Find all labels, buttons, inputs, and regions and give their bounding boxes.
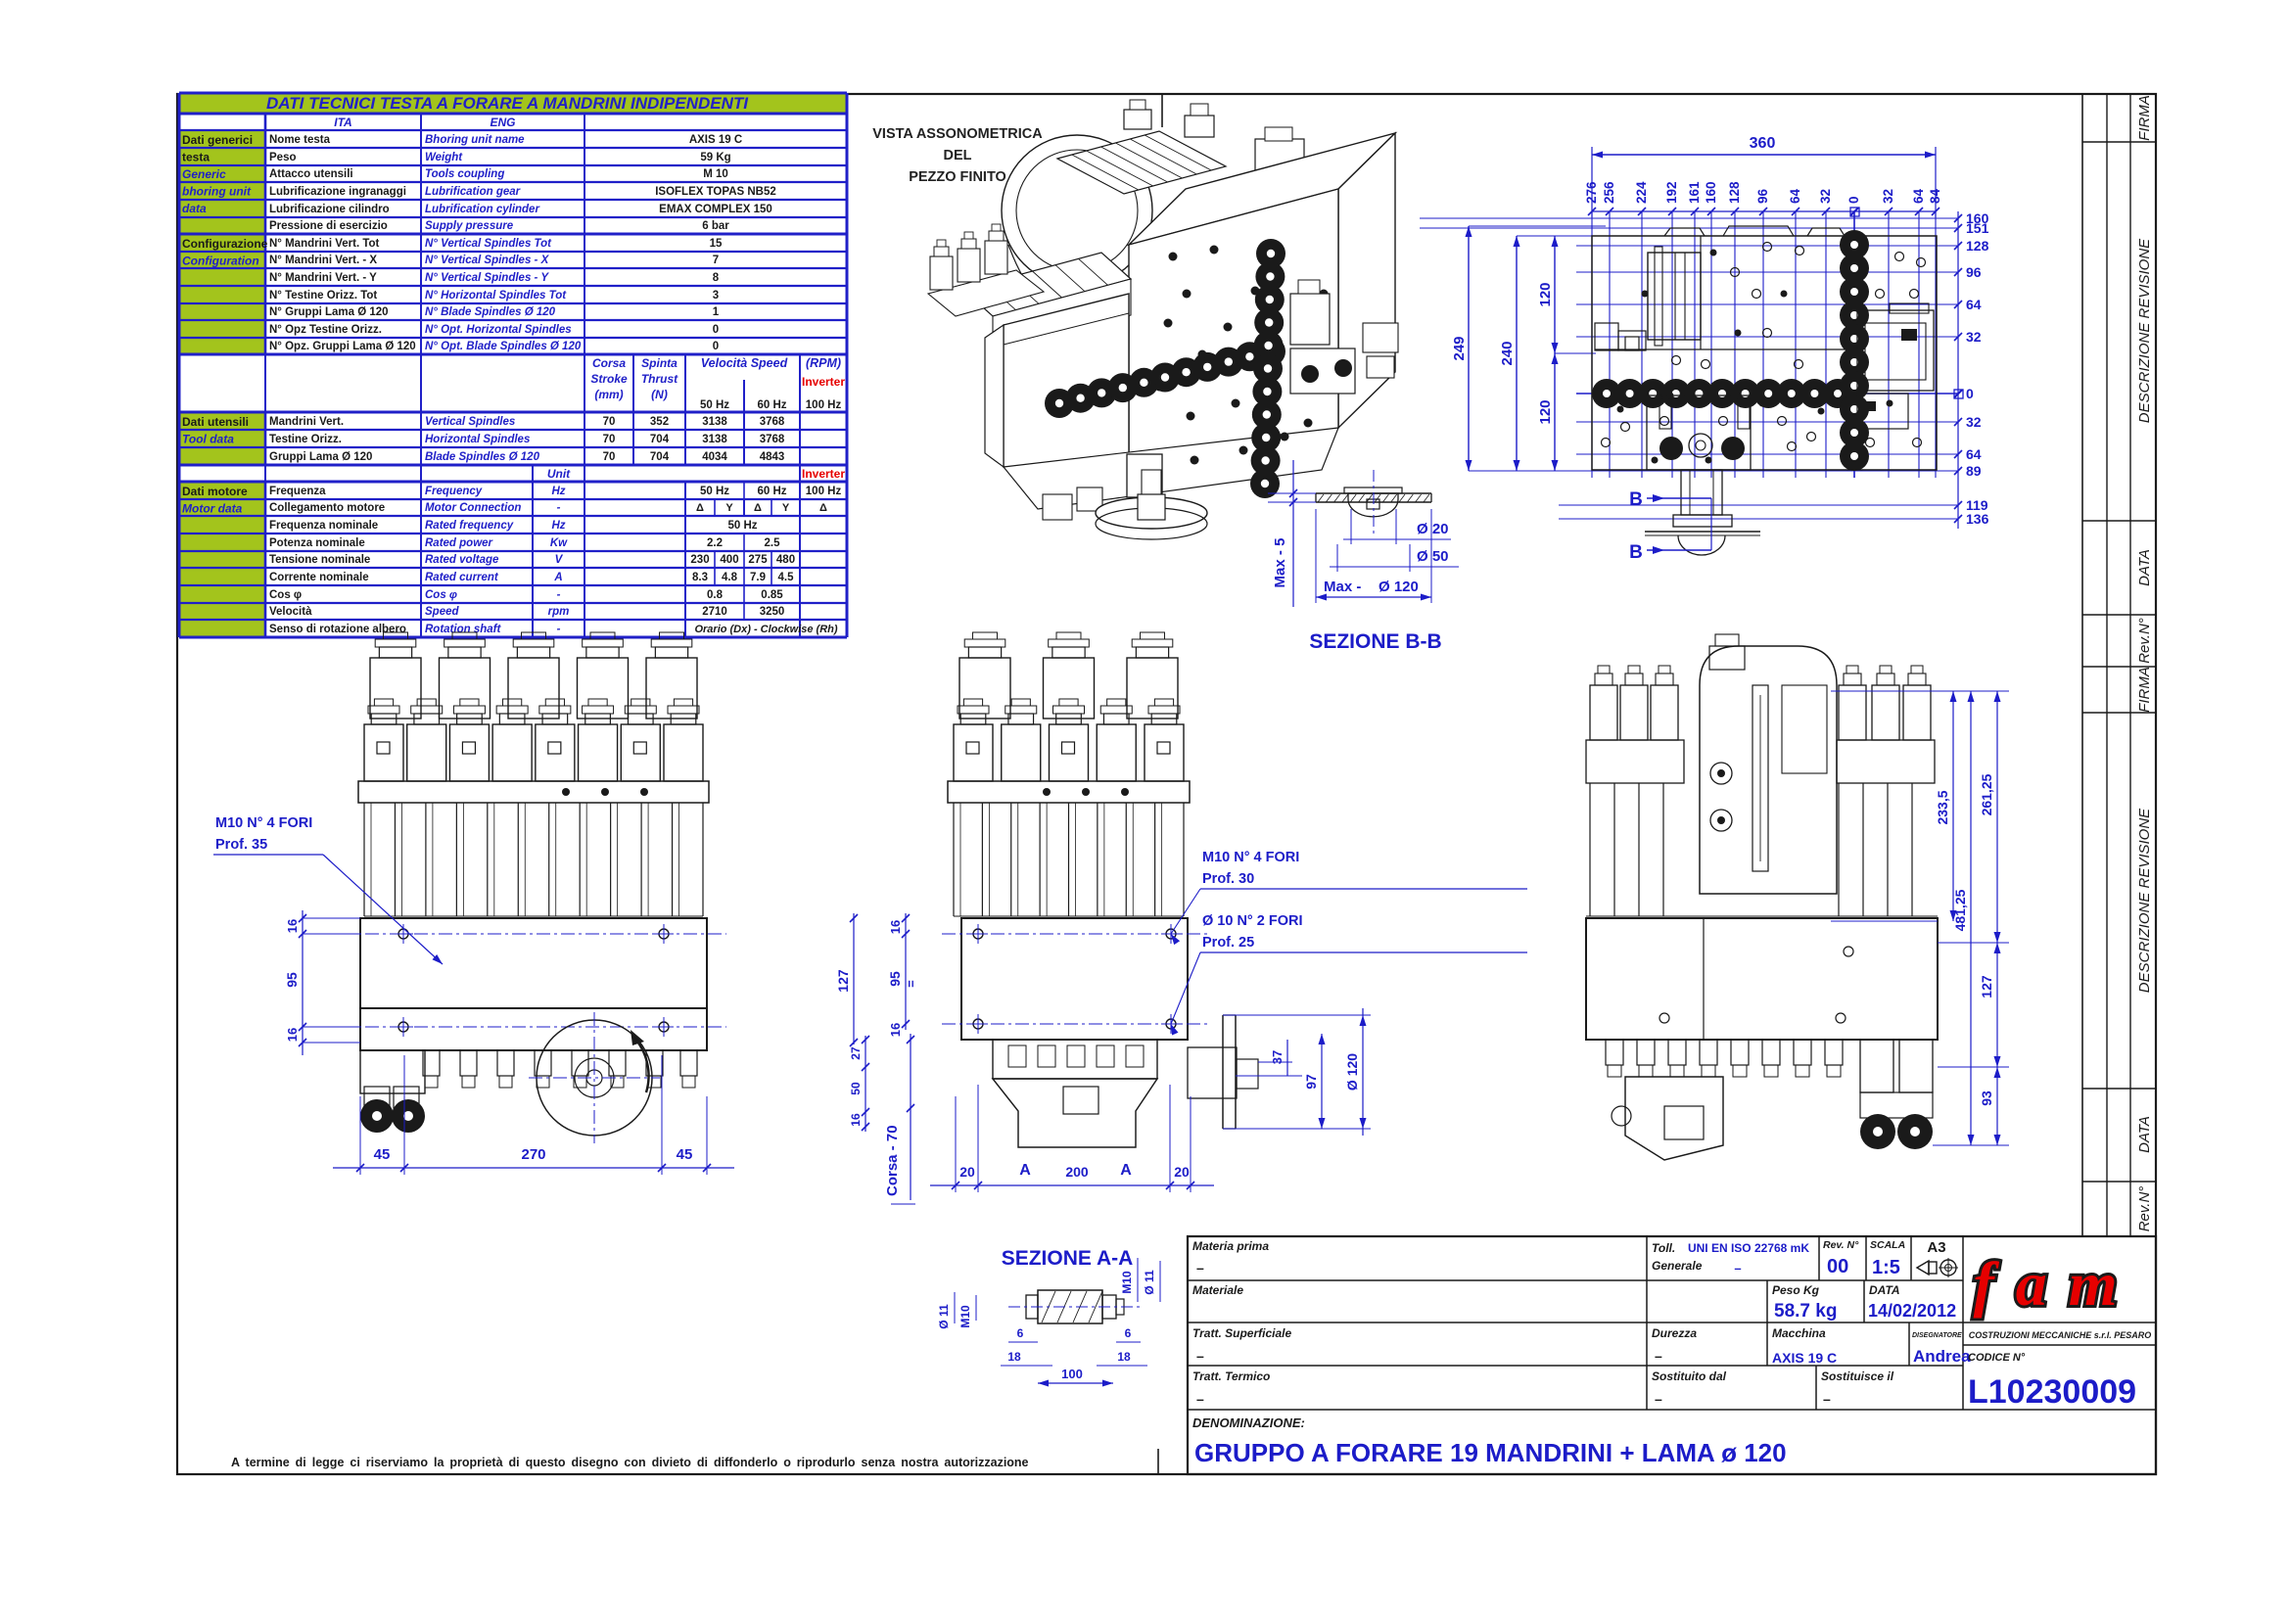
svg-text:Corsa - 70: Corsa - 70	[884, 1125, 901, 1196]
svg-text:Stroke: Stroke	[590, 372, 628, 386]
svg-text:Cos φ: Cos φ	[425, 589, 457, 601]
svg-text:7: 7	[713, 255, 719, 266]
svg-text:Max - 5: Max - 5	[1272, 538, 1288, 588]
svg-text:Velocità Speed: Velocità Speed	[701, 356, 788, 370]
svg-text:18: 18	[1007, 1350, 1021, 1364]
svg-text:Frequency: Frequency	[425, 486, 483, 497]
svg-text:COSTRUZIONI MECCANICHE s.r.l.: COSTRUZIONI MECCANICHE s.r.l. PESARO	[1969, 1330, 2152, 1340]
svg-text:N° Opt. Horizontal Spindles: N° Opt. Horizontal Spindles	[425, 324, 572, 336]
svg-text:Generic: Generic	[182, 167, 226, 181]
svg-text:ITA: ITA	[334, 116, 351, 129]
svg-text:0: 0	[713, 324, 719, 336]
svg-text:50: 50	[849, 1082, 863, 1095]
svg-text:151: 151	[1966, 220, 1989, 236]
svg-text:256: 256	[1602, 181, 1616, 204]
svg-text:261,25: 261,25	[1979, 773, 1994, 815]
svg-text:97: 97	[1303, 1074, 1319, 1090]
svg-text:Toll.: Toll.	[1652, 1241, 1675, 1255]
svg-text:4034: 4034	[702, 451, 727, 463]
svg-text:Lubrification gear: Lubrification gear	[425, 186, 521, 198]
svg-text:Pressione di esercizio: Pressione di esercizio	[269, 220, 388, 232]
svg-text:-: -	[557, 502, 561, 514]
svg-text:EMAX COMPLEX 150: EMAX COMPLEX 150	[659, 204, 772, 215]
svg-text:B: B	[1629, 542, 1643, 563]
svg-text:Rotation shaft: Rotation shaft	[425, 624, 501, 635]
svg-text:Dati utensili: Dati utensili	[182, 415, 249, 429]
svg-text:Configurazione: Configurazione	[182, 237, 268, 251]
svg-text:2.2: 2.2	[707, 537, 723, 549]
svg-text:Rev.N°: Rev.N°	[2136, 618, 2153, 664]
svg-text:Macchina: Macchina	[1772, 1326, 1826, 1340]
svg-text:–: –	[1196, 1260, 1204, 1276]
svg-text:120: 120	[1537, 282, 1554, 306]
svg-text:89: 89	[1966, 463, 1982, 479]
svg-text:128: 128	[1966, 238, 1989, 254]
svg-text:N° Vertical Spindles Tot: N° Vertical Spindles Tot	[425, 238, 552, 250]
svg-text:96: 96	[1966, 264, 1982, 280]
svg-text:N° Mandrini Vert. - Y: N° Mandrini Vert. - Y	[269, 272, 377, 284]
svg-text:N° Opt. Blade Spindles Ø 120: N° Opt. Blade Spindles Ø 120	[425, 341, 582, 352]
svg-text:–: –	[1196, 1391, 1204, 1407]
svg-text:70: 70	[603, 434, 616, 445]
svg-text:4.8: 4.8	[722, 572, 738, 583]
svg-text:UNI EN ISO 22768 mK: UNI EN ISO 22768 mK	[1688, 1241, 1809, 1255]
svg-text:192: 192	[1664, 181, 1679, 204]
svg-text:M10: M10	[958, 1305, 972, 1328]
svg-text:N° Opz. Gruppi Lama Ø 120: N° Opz. Gruppi Lama Ø 120	[269, 341, 416, 352]
svg-text:DESCRIZIONE REVISIONE: DESCRIZIONE REVISIONE	[2136, 238, 2153, 423]
svg-text:233,5: 233,5	[1935, 790, 1950, 824]
svg-text:Supply pressure: Supply pressure	[425, 220, 514, 232]
svg-text:3768: 3768	[760, 416, 785, 428]
svg-text:Tools coupling: Tools coupling	[425, 168, 504, 180]
svg-text:100: 100	[1061, 1367, 1083, 1381]
svg-text:60 Hz: 60 Hz	[757, 399, 786, 411]
svg-text:M10: M10	[1120, 1271, 1134, 1294]
svg-text:3138: 3138	[702, 416, 727, 428]
svg-text:Frequenza: Frequenza	[269, 486, 326, 497]
svg-text:Configuration: Configuration	[182, 255, 259, 268]
svg-text:DEL: DEL	[944, 148, 972, 163]
svg-text:Thrust: Thrust	[641, 372, 678, 386]
svg-text:Cos φ: Cos φ	[269, 589, 302, 601]
svg-text:V: V	[555, 554, 564, 566]
svg-text:Peso: Peso	[269, 152, 297, 163]
svg-text:Rated current: Rated current	[425, 572, 499, 583]
svg-text:(N): (N)	[651, 388, 668, 401]
svg-text:Motor Connection: Motor Connection	[425, 502, 521, 514]
svg-text:-: -	[557, 589, 561, 601]
svg-text:50 Hz: 50 Hz	[700, 399, 729, 411]
svg-text:50 Hz: 50 Hz	[700, 486, 729, 497]
svg-text:Generale: Generale	[1652, 1259, 1703, 1273]
svg-text:Weight: Weight	[425, 152, 463, 163]
svg-text:DATA: DATA	[2136, 1116, 2153, 1153]
svg-text:32: 32	[1881, 189, 1895, 204]
svg-text:DISEGNATORE: DISEGNATORE	[1912, 1332, 1962, 1339]
svg-text:4.5: 4.5	[778, 572, 795, 583]
svg-text:Materia prima: Materia prima	[1192, 1239, 1269, 1253]
svg-text:93: 93	[1979, 1090, 1994, 1106]
svg-text:FIRMA: FIRMA	[2136, 95, 2153, 141]
svg-text:A: A	[1019, 1162, 1031, 1179]
svg-text:bhoring unit: bhoring unit	[182, 185, 252, 199]
svg-text:Durezza: Durezza	[1652, 1326, 1697, 1340]
svg-text:50 Hz: 50 Hz	[727, 520, 757, 532]
svg-text:37: 37	[1270, 1050, 1285, 1064]
svg-text:704: 704	[650, 451, 670, 463]
svg-text:VISTA ASSONOMETRICA: VISTA ASSONOMETRICA	[872, 126, 1043, 142]
svg-text:Materiale: Materiale	[1192, 1283, 1243, 1297]
svg-text:Prof. 25: Prof. 25	[1202, 935, 1254, 951]
svg-text:Tratt. Superficiale: Tratt. Superficiale	[1192, 1326, 1291, 1340]
svg-text:32: 32	[1966, 329, 1982, 345]
svg-text:Vertical Spindles: Vertical Spindles	[425, 416, 515, 428]
svg-text:FIRMA: FIRMA	[2136, 667, 2153, 713]
svg-text:Corrente nominale: Corrente nominale	[269, 572, 369, 583]
svg-text:1: 1	[713, 306, 720, 318]
svg-text:Tool data: Tool data	[182, 433, 234, 446]
svg-text:Prof. 30: Prof. 30	[1202, 871, 1254, 887]
svg-text:Frequenza nominale: Frequenza nominale	[269, 520, 378, 532]
svg-text:Kw: Kw	[550, 537, 568, 549]
svg-text:15: 15	[710, 238, 723, 250]
svg-text:136: 136	[1966, 511, 1989, 527]
svg-text:240: 240	[1499, 341, 1516, 365]
svg-text:Orario (Dx) - Clockwise (Rh): Orario (Dx) - Clockwise (Rh)	[694, 624, 837, 635]
svg-text:6 bar: 6 bar	[702, 220, 729, 232]
svg-text:Collegamento motore: Collegamento motore	[269, 502, 385, 514]
svg-text:N° Blade Spindles Ø 120: N° Blade Spindles Ø 120	[425, 306, 556, 318]
svg-text:16: 16	[285, 1028, 300, 1042]
svg-text:Lubrificazione ingranaggi: Lubrificazione ingranaggi	[269, 186, 406, 198]
svg-text:Sostituisce il: Sostituisce il	[1821, 1369, 1894, 1383]
svg-text:Y: Y	[725, 502, 733, 514]
svg-text:161: 161	[1687, 181, 1702, 204]
svg-text:Peso Kg: Peso Kg	[1772, 1283, 1820, 1297]
svg-text:Ø 11: Ø 11	[1143, 1270, 1156, 1295]
svg-text:Potenza nominale: Potenza nominale	[269, 537, 365, 549]
svg-text:704: 704	[650, 434, 670, 445]
svg-text:2710: 2710	[702, 606, 727, 618]
svg-text:120: 120	[1537, 399, 1554, 424]
svg-text:B: B	[1629, 489, 1643, 510]
svg-text:Δ: Δ	[754, 502, 762, 514]
svg-text:00: 00	[1827, 1256, 1848, 1277]
svg-text:Rated voltage: Rated voltage	[425, 554, 499, 566]
svg-text:Dati motore: Dati motore	[182, 485, 248, 498]
svg-text:(mm): (mm)	[594, 388, 623, 401]
svg-text:DATI TECNICI TESTA A FORARE A: DATI TECNICI TESTA A FORARE A MANDRINI I…	[266, 94, 749, 113]
svg-text:249: 249	[1451, 336, 1468, 360]
svg-text:1:5: 1:5	[1872, 1257, 1900, 1278]
svg-text:DENOMINAZIONE:: DENOMINAZIONE:	[1192, 1415, 1305, 1430]
svg-text:Y: Y	[782, 502, 790, 514]
svg-text:A termine di legge ci riservia: A termine di legge ci riserviamo la prop…	[231, 1456, 1029, 1469]
svg-text:–: –	[1734, 1261, 1741, 1276]
svg-text:2.5: 2.5	[765, 537, 781, 549]
svg-text:A: A	[553, 572, 562, 583]
svg-text:Lubrificazione cilindro: Lubrificazione cilindro	[269, 204, 390, 215]
svg-text:Bhoring unit name: Bhoring unit name	[425, 134, 525, 146]
svg-text:N° Opz Testine Orizz.: N° Opz Testine Orizz.	[269, 324, 382, 336]
svg-text:testa: testa	[182, 151, 210, 164]
svg-text:Sostituito dal: Sostituito dal	[1652, 1369, 1727, 1383]
svg-text:Rev. N°: Rev. N°	[1823, 1239, 1859, 1251]
svg-text:A: A	[1120, 1162, 1132, 1179]
svg-text:L10230009: L10230009	[1968, 1373, 2136, 1411]
svg-text:270: 270	[521, 1146, 545, 1163]
svg-text:45: 45	[677, 1146, 693, 1163]
svg-text:230: 230	[690, 554, 709, 566]
svg-text:-: -	[557, 624, 561, 635]
svg-text:ISOFLEX TOPAS NB52: ISOFLEX TOPAS NB52	[655, 186, 776, 198]
svg-text:32: 32	[1966, 414, 1982, 430]
svg-text:Hz: Hz	[551, 486, 565, 497]
svg-text:Speed: Speed	[425, 606, 459, 618]
svg-text:SEZIONE B-B: SEZIONE B-B	[1309, 630, 1441, 653]
svg-text:352: 352	[650, 416, 669, 428]
svg-text:PEZZO FINITO: PEZZO FINITO	[909, 169, 1006, 185]
svg-text:20: 20	[959, 1164, 975, 1180]
svg-text:Gruppi Lama Ø 120: Gruppi Lama Ø 120	[269, 451, 372, 463]
svg-text:127: 127	[1979, 975, 1994, 998]
svg-text:100 Hz: 100 Hz	[806, 486, 842, 497]
svg-text:Mandrini Vert.: Mandrini Vert.	[269, 416, 344, 428]
svg-text:Ø 120: Ø 120	[1379, 579, 1419, 595]
svg-text:45: 45	[374, 1146, 391, 1163]
svg-text:8.3: 8.3	[692, 572, 708, 583]
svg-text:100 Hz: 100 Hz	[806, 399, 842, 411]
svg-text:27: 27	[849, 1046, 863, 1060]
svg-text:400: 400	[720, 554, 738, 566]
svg-text:SEZIONE A-A: SEZIONE A-A	[1002, 1247, 1134, 1270]
svg-text:3768: 3768	[760, 434, 785, 445]
svg-text:7.9: 7.9	[750, 572, 766, 583]
svg-text:AXIS 19 C: AXIS 19 C	[1772, 1350, 1837, 1366]
svg-text:A3: A3	[1927, 1239, 1945, 1256]
svg-text:Attacco utensili: Attacco utensili	[269, 168, 353, 180]
svg-text:Ø 50: Ø 50	[1417, 548, 1449, 565]
svg-text:16: 16	[849, 1113, 863, 1127]
svg-text:95: 95	[887, 971, 903, 987]
svg-text:6: 6	[1125, 1326, 1132, 1340]
svg-text:95: 95	[284, 972, 300, 988]
svg-text:Rated power: Rated power	[425, 537, 493, 549]
svg-text:128: 128	[1727, 181, 1742, 204]
svg-text:Velocità: Velocità	[269, 606, 312, 618]
svg-text:M10 N° 4 FORI: M10 N° 4 FORI	[215, 815, 312, 831]
svg-text:18: 18	[1117, 1350, 1131, 1364]
svg-text:8: 8	[713, 272, 720, 284]
svg-text:276: 276	[1584, 181, 1599, 204]
svg-text:16: 16	[888, 1023, 903, 1037]
svg-text:20: 20	[1174, 1164, 1190, 1180]
svg-text:–: –	[1823, 1391, 1831, 1407]
svg-text:Rev.N°: Rev.N°	[2136, 1186, 2153, 1232]
svg-text:Tratt. Termico: Tratt. Termico	[1192, 1369, 1270, 1383]
svg-text:N° Testine Orizz. Tot: N° Testine Orizz. Tot	[269, 290, 377, 302]
svg-text:Unit: Unit	[547, 467, 571, 481]
svg-text:6: 6	[1017, 1326, 1024, 1340]
svg-text:=: =	[904, 980, 918, 988]
svg-text:Hz: Hz	[551, 520, 565, 532]
svg-text:data: data	[182, 202, 207, 215]
svg-text:0: 0	[1966, 386, 1974, 401]
svg-text:(RPM): (RPM)	[806, 356, 841, 370]
svg-text:DATA: DATA	[1869, 1283, 1900, 1297]
svg-text:Testine Orizz.: Testine Orizz.	[269, 434, 342, 445]
svg-text:Nome testa: Nome testa	[269, 134, 331, 146]
svg-text:M 10: M 10	[703, 168, 728, 180]
svg-text:3: 3	[713, 290, 719, 302]
svg-text:ENG: ENG	[490, 116, 515, 129]
svg-text:Inverter: Inverter	[802, 375, 845, 389]
svg-text:0: 0	[1846, 196, 1861, 204]
svg-text:Corsa: Corsa	[592, 356, 626, 370]
svg-text:DATA: DATA	[2136, 549, 2153, 586]
svg-text:3138: 3138	[702, 434, 727, 445]
svg-text:64: 64	[1788, 188, 1802, 204]
svg-text:84: 84	[1928, 188, 1942, 204]
svg-text:Ø 20: Ø 20	[1417, 521, 1449, 537]
svg-text:16: 16	[285, 919, 300, 933]
svg-text:Spinta: Spinta	[641, 356, 678, 370]
svg-text:Ø 120: Ø 120	[1344, 1053, 1360, 1090]
svg-text:Δ: Δ	[819, 502, 827, 514]
svg-text:Ø 11: Ø 11	[937, 1304, 951, 1329]
svg-text:DESCRIZIONE REVISIONE: DESCRIZIONE REVISIONE	[2136, 808, 2153, 993]
svg-text:Blade Spindles Ø 120: Blade Spindles Ø 120	[425, 451, 540, 463]
svg-text:Max -: Max -	[1324, 579, 1361, 595]
svg-text:Senso di rotazione albero: Senso di rotazione albero	[269, 624, 406, 635]
svg-text:0: 0	[713, 341, 719, 352]
svg-text:3250: 3250	[760, 606, 785, 618]
svg-text:N° Mandrini Vert. Tot: N° Mandrini Vert. Tot	[269, 238, 380, 250]
svg-text:127: 127	[835, 969, 851, 993]
svg-text:70: 70	[603, 416, 616, 428]
svg-text:–: –	[1655, 1391, 1662, 1407]
svg-text:Horizontal Spindles: Horizontal Spindles	[425, 434, 530, 445]
svg-text:64: 64	[1911, 188, 1926, 204]
svg-text:CODICE N°: CODICE N°	[1968, 1352, 2026, 1364]
svg-text:N° Horizontal Spindles Tot: N° Horizontal Spindles Tot	[425, 290, 567, 302]
svg-text:224: 224	[1634, 181, 1649, 204]
svg-text:N° Mandrini Vert. - X: N° Mandrini Vert. - X	[269, 255, 377, 266]
svg-text:Andrea: Andrea	[1913, 1347, 1971, 1366]
svg-text:GRUPPO A FORARE 19 MANDRINI +: GRUPPO A FORARE 19 MANDRINI + LAMA ø 120	[1194, 1438, 1787, 1467]
svg-text:275: 275	[748, 554, 768, 566]
svg-text:16: 16	[888, 920, 903, 934]
svg-text:Δ: Δ	[696, 502, 704, 514]
svg-text:481,25: 481,25	[1952, 889, 1968, 931]
svg-text:AXIS 19 C: AXIS 19 C	[689, 134, 742, 146]
svg-text:200: 200	[1065, 1164, 1089, 1180]
svg-text:64: 64	[1966, 446, 1982, 462]
svg-text:–: –	[1655, 1348, 1662, 1364]
svg-text:N° Gruppi Lama Ø 120: N° Gruppi Lama Ø 120	[269, 306, 389, 318]
svg-text:96: 96	[1755, 188, 1770, 204]
svg-text:Dati generici: Dati generici	[182, 133, 253, 147]
svg-text:60 Hz: 60 Hz	[757, 486, 786, 497]
svg-text:fam: fam	[1973, 1249, 2138, 1319]
svg-text:32: 32	[1818, 189, 1833, 204]
svg-text:N° Vertical Spindles - X: N° Vertical Spindles - X	[425, 255, 550, 266]
svg-text:SCALA: SCALA	[1870, 1239, 1905, 1251]
svg-text:N° Vertical Spindles - Y: N° Vertical Spindles - Y	[425, 272, 549, 284]
svg-text:14/02/2012: 14/02/2012	[1868, 1301, 1956, 1321]
svg-text:160: 160	[1704, 181, 1718, 204]
svg-text:Ø 10 N° 2 FORI: Ø 10 N° 2 FORI	[1202, 913, 1303, 929]
svg-text:64: 64	[1966, 297, 1982, 312]
svg-text:4843: 4843	[760, 451, 785, 463]
svg-text:59 Kg: 59 Kg	[700, 152, 730, 163]
svg-text:0.85: 0.85	[761, 589, 783, 601]
svg-text:–: –	[1196, 1348, 1204, 1364]
svg-text:480: 480	[776, 554, 795, 566]
svg-text:70: 70	[603, 451, 616, 463]
svg-text:Rated frequency: Rated frequency	[425, 520, 514, 532]
svg-text:rpm: rpm	[548, 606, 570, 618]
svg-text:360: 360	[1750, 135, 1776, 152]
svg-text:58.7 kg: 58.7 kg	[1774, 1301, 1837, 1322]
svg-text:Prof. 35: Prof. 35	[215, 837, 267, 853]
svg-text:M10 N° 4 FORI: M10 N° 4 FORI	[1202, 850, 1299, 865]
svg-text:0.8: 0.8	[707, 589, 724, 601]
svg-text:Motor data: Motor data	[182, 502, 243, 516]
svg-text:Inverter: Inverter	[802, 467, 845, 481]
svg-text:Tensione nominale: Tensione nominale	[269, 554, 370, 566]
svg-text:Lubrification cylinder: Lubrification cylinder	[425, 204, 539, 215]
